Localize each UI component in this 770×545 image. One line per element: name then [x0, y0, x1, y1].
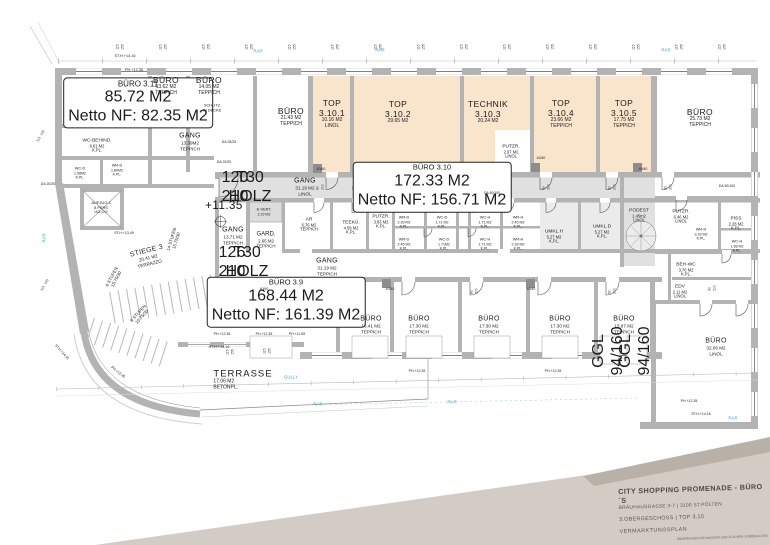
room-label-top-3102: TOP3.10.229.65 M2 [385, 99, 411, 125]
room-label-wr-h1: WR-H2.45 M2K.PL. [512, 215, 525, 228]
dim-pair: 115155 [417, 44, 426, 50]
annotation-ph1235-f: PH.+12.35 [681, 399, 698, 403]
annotation-ph1235-c: PH.+12.35 [256, 332, 273, 336]
room-label-putzr-646: PUTZR.6.46 M2LINOL [672, 209, 689, 224]
rar-label-bottom-a: RAR [313, 402, 322, 407]
room-label-buero-3-11: BÜRO 3.1185.72 M2Netto NF: 82.35 M2 [63, 77, 213, 128]
room-label-wr-h3: WR-H3.33 M2K.PL. [695, 227, 708, 240]
door-dim-pair: 80200 [664, 184, 673, 190]
room-label-wc-h2: WC-H1.71 M2K.PL. [479, 237, 492, 250]
room-label-top-3101: TOP3.10.110.16 M2LINOL [319, 98, 345, 130]
gully-label: GULLY [284, 375, 298, 380]
room-label-wc-behind: WC-BEHIND.6.61 M2K.PL. [82, 138, 111, 153]
annotation-sth1349: ST.H.+13.49 [114, 231, 133, 235]
rar-label-left: RAR [42, 233, 47, 242]
room-label-piss: PISS2.28 M2K.PL. [729, 216, 744, 231]
room-label-umkl-h: UMKL.H5.27 M2K.PL. [545, 229, 563, 244]
rar-label-top-b: RAR [375, 48, 384, 53]
door-dim-pair: 80200 [470, 288, 479, 294]
annotation-da90100: DA 90/100 [719, 184, 735, 188]
dim-pair: 115155 [226, 349, 235, 355]
room-label-buero-1730b: BÜRO17.30 M2TEPPICH [478, 315, 499, 334]
dim-pair: 115155 [632, 44, 641, 50]
annotation-ph1165: PH.+11.65 [289, 332, 305, 336]
room-label-buero-2143: BÜRO21.43 M2TEPPICH [278, 106, 304, 128]
dim-pair: 115155 [202, 44, 211, 50]
dim-pair: 115155 [675, 44, 684, 50]
door-tag-t30-holz-a: T30HOLZ [229, 169, 272, 207]
room-label-gang-1371: GANG13.71 M2TEPPICH [222, 226, 244, 245]
room-label-wc-d2: WC-D1.71 M2K.PL. [436, 215, 449, 228]
room-label-wr-d2: WR-D2.39 M2K.PL. [398, 215, 411, 228]
room-label-top-3105: TOP3.10.517.75 M2TEPPICH [611, 98, 637, 130]
room-label-gang-linol: GANG31.19 M2LINOL [294, 177, 316, 196]
room-label-putzr-297: PUTZR.2.97 M2LINOL [502, 144, 519, 159]
dim-pair: 115155 [288, 44, 297, 50]
rar-label-top-a: RAR [253, 49, 262, 54]
room-label-buero-1730c: BÜRO17.30 M2TEPPICH [549, 315, 570, 334]
annotation-4040-f: 40/40 [527, 287, 536, 291]
room-label-edv: EDV2.11 M2LINOL [673, 284, 688, 299]
room-label-technik-3103: TECHNIK3.10.320.24 M2 [468, 99, 508, 125]
room-label-gang-teppich: GANG31.19 M2TEPPICH [316, 257, 338, 276]
rar-label-bottom-b: RAR [447, 400, 456, 405]
rar-label-top-c: RAR [661, 48, 670, 53]
dim-pair: 115155 [331, 44, 340, 50]
annotation-da60100: DA 60/100 [484, 191, 500, 195]
door-dim-pair: 80200 [316, 184, 325, 190]
room-label-wc-h3: WC-H1.58 M2K.PL. [731, 239, 744, 252]
annotation-sth1416-b: ST.H.+14.16 [208, 345, 229, 349]
room-label-wr-d3: WR-D2.45 M2K.PL. [398, 237, 411, 250]
door-tag-t30-holz-b: T30HOLZ [226, 244, 269, 282]
door-dim-pair: 80200 [608, 184, 617, 190]
room-label-wr-d1: WR-D1.80M2K.PL. [111, 163, 123, 176]
rar-label-bottom-right: RAR [728, 416, 737, 421]
window-tag-ggl-b: GGL94/160 [617, 327, 655, 376]
dim-pair: 115155 [460, 44, 469, 50]
room-label-ar: AR6.76 M2TEPPICH [300, 217, 318, 232]
dim-pair: 115155 [245, 44, 254, 50]
annotation-ph1235-a: PH.+12.35 [125, 68, 143, 72]
floor-plan-page: BÜRO9.67 M2TEPPICH BÜRO 3.1185.72 M2Nett… [0, 0, 770, 545]
room-label-gang-1339: GANG13.39M2TEPPICH [179, 132, 201, 151]
room-label-teekue: TEEKÜ.4.59 M2K.PL. [342, 220, 359, 235]
room-label-buero-1362: BÜRO13.62 M2TEPPICH [153, 75, 179, 97]
room-label-buero-3-10: BÜRO 3.10172.33 M2Netto NF: 156.71 M2 [353, 162, 512, 213]
room-label-wr-h2: WR-H2.39 M2K.PL. [512, 237, 525, 250]
title-block: CITY SHOPPING PROMENADE - BÜRO´S BRÄUHAU… [618, 482, 768, 543]
dim-pair: 115155 [116, 44, 125, 50]
room-label-umkl-d: UMKL.D5.27 M2K.PL. [593, 224, 611, 239]
door-dim-pair: 80200 [608, 288, 617, 294]
dim-pair: 115155 [263, 348, 272, 354]
dim-pair: 115155 [159, 44, 168, 50]
dim-pair: 115155 [718, 44, 727, 50]
annotation-da2020-a: DA 20/20 [217, 160, 231, 164]
dim-pair: 115155 [503, 44, 512, 50]
annotation-sth1416-a: ST.H.+14.16 [114, 54, 135, 58]
room-label-top-3104: TOP3.10.423.66 M2TEPPICH [548, 98, 574, 130]
dim-pair: 115155 [546, 44, 555, 50]
annotation-4040-c: 40/40 [639, 167, 648, 171]
annotation-ph1235-d: PH.+12.35 [409, 369, 426, 373]
room-label-buero-3-9: BÜRO 3.9168.44 M2Netto NF: 161.39 M2 [207, 277, 366, 328]
floor-and-unit: 3.OBERGESCHOSS | TOP 3.10 [619, 512, 767, 523]
annotation-sth1416-c: ST.H.+14.16 [691, 412, 710, 416]
dimension-strip [30, 22, 756, 64]
room-label-wc-d1: WC-D1.58M2K.PL. [74, 166, 86, 179]
room-label-putzr-383: PUTZR.3.83 M2K.PL. [372, 214, 389, 229]
room-label-buero-1405: BÜRO14.05 M2TEPPICH [196, 75, 222, 97]
annotation-ph1235-b: PH.+12.35 [214, 332, 231, 336]
room-label-buero-1641: BÜRO16.41 M2TEPPICH [360, 315, 381, 334]
door-dim-pair: 90200 [708, 285, 717, 291]
level-marker-icon [214, 215, 227, 228]
room-label-buero-3206: BÜRO32.06 M2LINOL [705, 337, 726, 356]
annotation-da2020-b: DA 20/20 [41, 182, 55, 186]
room-label-buero-1730a: BÜRO17.30 M2TEPPICH [408, 315, 429, 334]
room-label-terrasse: TERRASSE17.06 M2BETONPL. [213, 369, 272, 392]
door-dim-pair: 80200 [542, 184, 551, 190]
room-label-aufzug: AUFZUG 48 PERSUG-OG [91, 201, 110, 215]
annotation-4040-e: 40/40 [386, 287, 395, 291]
room-label-wc-d3: WC-D1.71M2K.PL. [438, 237, 450, 250]
annotation-4040-b: 40/40 [537, 156, 546, 160]
room-label-beh-wc: BEH-WC3.76 M2K.PL. [676, 262, 695, 277]
annotation-da2525: DA 25/25 [222, 140, 236, 144]
room-label-evert: E-VERT.2.29 M2 [257, 208, 272, 217]
annotation-schlitz: SCHLITZIN DECKE [203, 103, 221, 112]
room-label-wc-h1: WC-H1.71 M2K.PL. [479, 215, 492, 228]
room-label-podest: PODEST1.45m2LINOL [629, 208, 649, 223]
annotation-4040-a: 40/40 [317, 167, 326, 171]
plan-type: VERMARKTUNGSPLAN [619, 524, 767, 535]
room-label-buero-2573: BÜRO25.73 M2TEPPICH [687, 107, 713, 129]
annotation-4040-d: 40/40 [260, 287, 269, 291]
dim-pair: 115155 [589, 44, 598, 50]
annotation-ph1235-e: PH.+12.35 [545, 369, 562, 373]
